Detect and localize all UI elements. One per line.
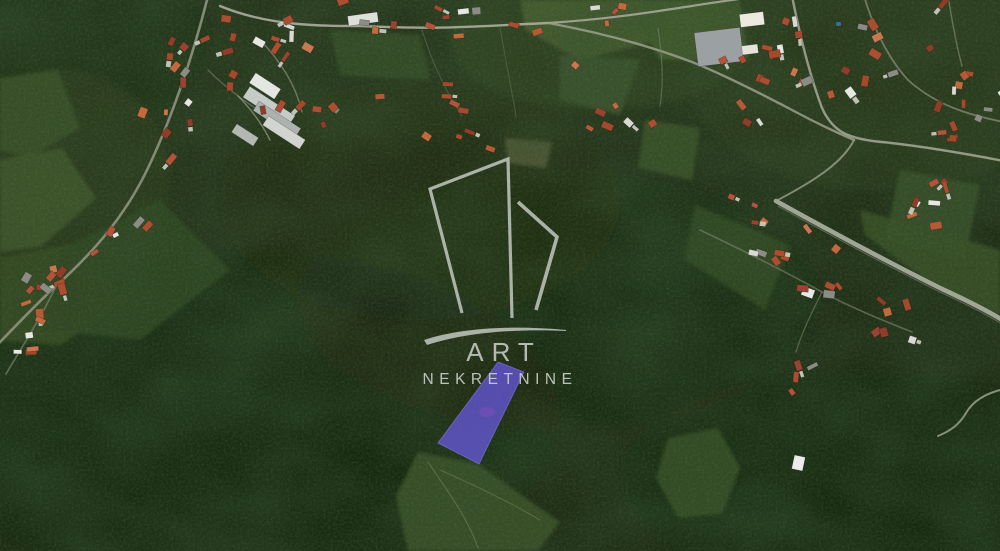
outbuilding-marker [759,221,766,226]
house-marker [457,8,469,15]
brand-subtitle: NEKRETNINE [423,371,578,388]
house-marker [442,15,450,20]
outbuilding-marker [785,252,790,257]
outbuilding-marker [379,29,386,33]
house-marker [793,371,799,382]
house-marker [187,119,193,127]
house-marker [983,107,992,112]
canopy-texture-light [0,0,1000,551]
house-marker [472,7,481,15]
building-roof [739,12,764,28]
satellite-map-viewport[interactable]: ART NEKRETNINE [0,0,1000,551]
outbuilding-marker [188,127,193,132]
house-marker [13,350,21,354]
house-marker [25,332,33,339]
outbuilding-marker [166,61,172,68]
house-marker [164,109,168,115]
house-marker [442,82,453,87]
house-marker [227,82,234,91]
building-roof [836,22,841,26]
satellite-map-image[interactable]: ART NEKRETNINE [0,0,1000,551]
house-marker [795,31,803,39]
house-marker [312,106,322,113]
house-marker [441,94,451,99]
house-marker [390,21,397,30]
brand-name: ART [466,337,542,367]
outbuilding-marker [931,132,936,136]
house-marker [590,5,600,11]
house-marker [797,285,809,293]
house-marker [359,19,370,26]
house-marker [961,99,965,108]
house-marker [289,31,294,43]
house-marker [372,27,379,35]
house-marker [937,130,947,136]
house-marker [768,50,781,59]
house-marker [166,53,173,61]
house-marker [949,135,957,142]
house-marker [604,20,609,27]
house-marker [952,86,956,95]
house-marker [180,77,186,88]
house-marker [751,220,759,225]
parcel-accent-spot [479,407,495,417]
house-marker [618,2,627,10]
outbuilding-marker [798,39,802,46]
house-marker [928,200,940,206]
house-marker [221,15,232,23]
house-marker [453,33,464,39]
outbuilding-marker [452,95,457,98]
building-roof [742,44,759,55]
house-marker [26,346,38,352]
house-marker [375,94,385,100]
